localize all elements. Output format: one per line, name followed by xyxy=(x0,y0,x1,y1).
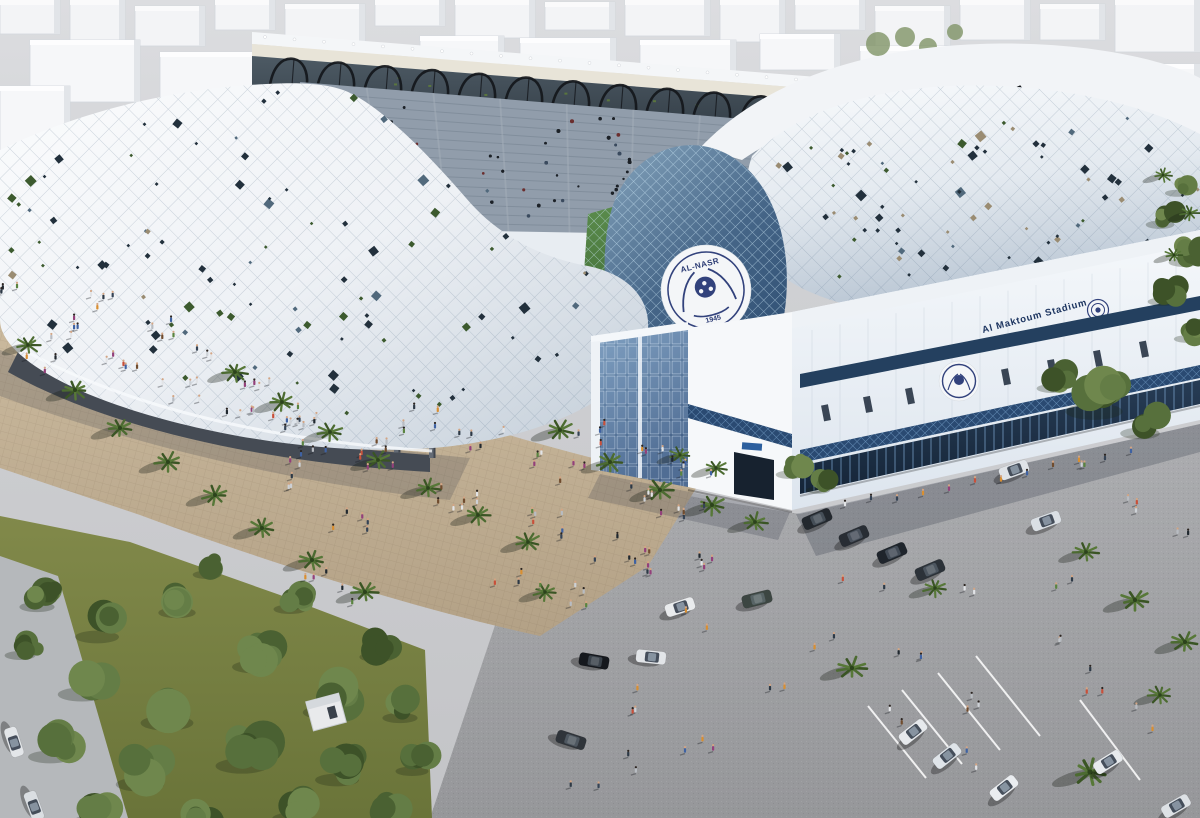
city-block xyxy=(760,34,840,70)
rim-light xyxy=(647,66,650,69)
rim-light xyxy=(293,38,296,41)
scene-canvas: AL-NASR 1945 Al Maktoum Stadium xyxy=(0,0,1200,818)
spectator xyxy=(527,214,531,218)
spectator xyxy=(615,188,618,191)
spectator xyxy=(614,144,617,147)
rim-light xyxy=(470,52,473,55)
spectator xyxy=(570,119,574,123)
entrance-door xyxy=(734,452,774,500)
spectator xyxy=(482,172,485,175)
background-tree xyxy=(866,32,890,56)
city-block xyxy=(455,0,535,38)
rim-light xyxy=(795,78,798,81)
spectator xyxy=(557,129,561,133)
spectator xyxy=(616,185,619,188)
spectator xyxy=(626,170,629,173)
rim-light xyxy=(765,76,768,79)
glazing-plant xyxy=(653,100,656,102)
glazing-plant xyxy=(564,93,567,95)
rim-light xyxy=(441,50,444,53)
rim-light xyxy=(264,36,267,39)
entrance-sign xyxy=(742,442,762,450)
glazing-plant xyxy=(428,85,431,87)
glazing-plant xyxy=(607,99,610,101)
spectator xyxy=(612,117,615,120)
rim-light xyxy=(736,73,739,76)
rim-light xyxy=(500,54,503,57)
spectator xyxy=(607,136,611,140)
rim-light xyxy=(559,59,562,62)
spectator xyxy=(497,156,499,158)
city-block xyxy=(795,0,865,30)
background-tree xyxy=(947,24,963,40)
rim-light xyxy=(529,57,532,60)
spectator xyxy=(628,160,632,164)
city-block xyxy=(545,2,615,30)
rim-light xyxy=(677,69,680,72)
rim-light xyxy=(323,40,326,43)
glazing-plant xyxy=(484,94,487,96)
spectator xyxy=(553,199,556,202)
city-block xyxy=(215,0,275,30)
city-block xyxy=(1040,4,1105,40)
spectator xyxy=(537,204,541,208)
spectator xyxy=(618,152,622,156)
spectator xyxy=(617,133,621,137)
spectator xyxy=(556,174,558,176)
rim-light xyxy=(382,45,385,48)
stadium-aerial-rendering: AL-NASR 1945 Al Maktoum Stadium xyxy=(0,0,1200,818)
club-crest-facade xyxy=(939,361,979,401)
city-block xyxy=(625,0,710,36)
city-block xyxy=(960,0,1030,40)
city-block xyxy=(1115,0,1200,52)
spectator xyxy=(622,178,624,180)
glazing-plant xyxy=(394,83,397,85)
tower-edge-trim xyxy=(591,341,600,471)
city-block xyxy=(70,0,125,46)
spectator xyxy=(501,170,504,173)
spectator xyxy=(598,117,602,121)
spectator xyxy=(489,155,492,158)
rim-light xyxy=(706,71,709,74)
spectator xyxy=(611,192,614,195)
background-tree xyxy=(895,27,915,47)
rim-light xyxy=(352,43,355,46)
spectator xyxy=(561,199,564,202)
rim-light xyxy=(618,64,621,67)
spectator xyxy=(403,106,406,109)
spectator xyxy=(522,188,525,191)
city-block xyxy=(135,6,205,46)
rim-light xyxy=(588,61,591,64)
city-block xyxy=(0,0,60,34)
spectator xyxy=(577,185,579,187)
spectator xyxy=(490,200,493,203)
rim-light xyxy=(411,47,414,50)
spectator xyxy=(544,142,547,145)
spectator xyxy=(544,161,548,165)
city-block xyxy=(375,0,445,26)
